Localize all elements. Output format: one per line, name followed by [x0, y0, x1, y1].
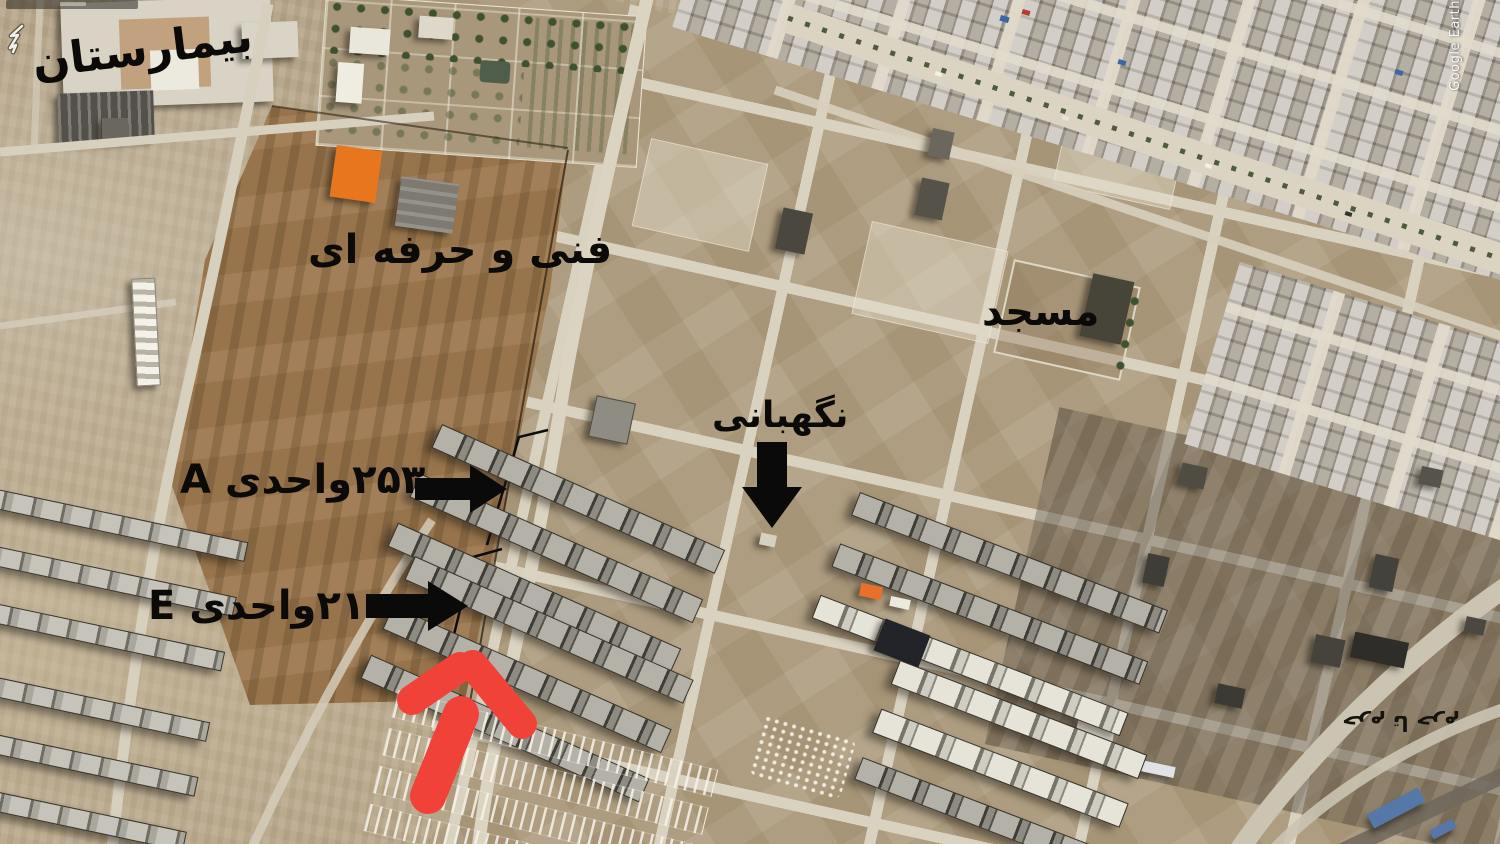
block-e-label: ۲۱۰واحدی E — [148, 586, 390, 626]
street-label-upside-down: حرم تا حرم — [1342, 712, 1460, 733]
satellite-map-canvas[interactable]: بیمارستان فنی و حرفه ای مسجد نگهبانی ۲۵۳… — [0, 0, 1500, 844]
overlay-bar-fragment — [6, 0, 138, 9]
block-a-label: ۲۵۳واحدی A — [180, 460, 425, 500]
mosque-label: مسجد — [982, 292, 1099, 332]
guard-post-label: نگهبانی — [712, 398, 848, 434]
block-a-arrow — [415, 465, 507, 513]
google-earth-watermark: Google Earth — [1448, 0, 1463, 91]
north-arrow-icon — [5, 23, 31, 55]
highlight-arrow — [412, 665, 522, 796]
vocational-school-label: فنی و حرفه ای — [308, 230, 612, 270]
overlay-bar-text-blur — [60, 2, 86, 6]
guard-arrow — [742, 442, 802, 528]
